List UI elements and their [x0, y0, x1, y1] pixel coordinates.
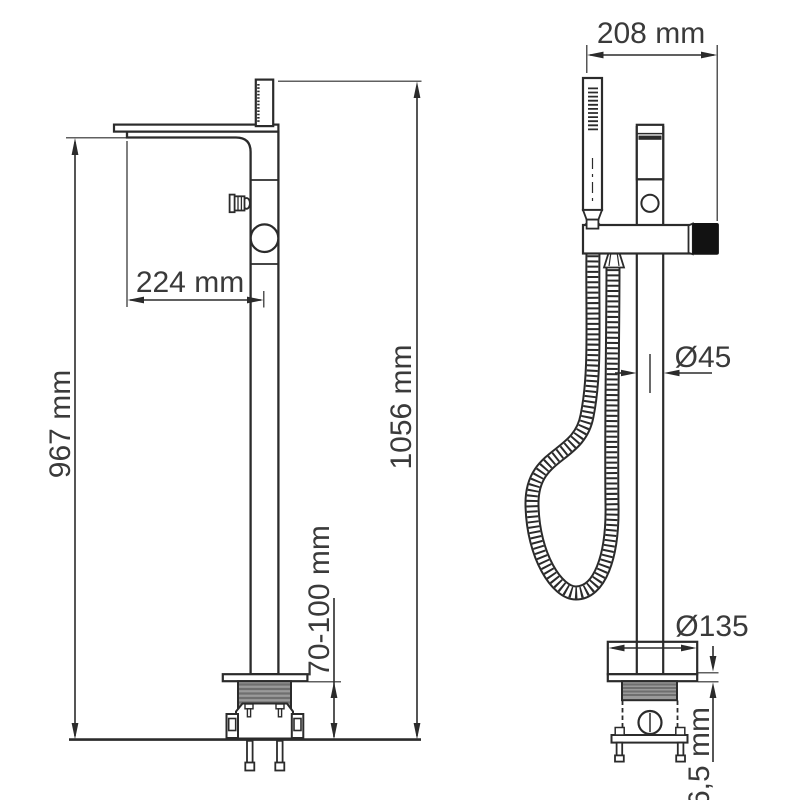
diverter-knob-cap — [230, 195, 235, 213]
shower-hose — [532, 250, 613, 593]
spout-top-plate — [114, 125, 278, 132]
side-view: 208 mm Ø45 Ø135 6,5 mm — [532, 17, 749, 800]
lever-handle — [256, 80, 273, 127]
diverter-knob-body — [235, 196, 245, 210]
rough-in-assembly — [612, 701, 688, 762]
faucet-dimension-drawing: 967 mm 1056 mm 224 mm 70-100 mm — [0, 0, 800, 800]
anchor-studs — [245, 741, 284, 771]
dimension-967: 967 mm — [44, 138, 131, 740]
clip-left-hole — [229, 719, 236, 731]
dimension-45: Ø45 — [615, 341, 731, 393]
dim-label-224: 224 mm — [136, 266, 244, 299]
wand-taper — [583, 210, 602, 220]
dimension-208: 208 mm — [587, 17, 717, 221]
bracket-bolt — [615, 728, 624, 736]
bolt-head — [245, 704, 253, 709]
hand-shower-wand — [583, 78, 602, 229]
stud-tip — [275, 763, 284, 771]
handle-cone-joint — [689, 224, 693, 255]
technical-drawing-page: 967 mm 1056 mm 224 mm 70-100 mm — [0, 0, 800, 800]
dimension-1056: 1056 mm — [278, 81, 422, 739]
dim-label-967: 967 mm — [44, 370, 77, 478]
diverter-knob — [230, 195, 250, 213]
diverter-button-front — [641, 195, 658, 212]
faucet-body-outline — [127, 132, 278, 675]
dim-label-45: Ø45 — [675, 341, 732, 374]
stud-stem — [277, 741, 283, 763]
dim-label-135: Ø135 — [675, 610, 748, 643]
wand-tip — [587, 220, 599, 229]
bolt-stem — [278, 709, 281, 717]
stud-tip — [245, 763, 254, 771]
spout-slot-shadow — [639, 136, 662, 140]
stud-stem — [617, 743, 623, 756]
bracket-bar — [612, 735, 688, 743]
dim-label-6-5: 6,5 mm — [683, 707, 716, 800]
threaded-tail-side — [622, 681, 677, 700]
stud-stem — [247, 741, 253, 763]
hose-outline — [532, 250, 613, 593]
temperature-handle-black — [693, 224, 719, 255]
base-flange-plate — [608, 674, 697, 681]
floor-flange-plate — [223, 674, 308, 681]
dimension-70-100: 70-100 mm — [303, 525, 341, 739]
dimension-224: 224 mm — [127, 141, 264, 308]
front-view: 967 mm 1056 mm 224 mm 70-100 mm — [44, 80, 422, 771]
bolt-stem — [247, 709, 250, 717]
temperature-dial — [251, 224, 279, 252]
clip-right-hole — [294, 719, 301, 731]
dim-label-70-100: 70-100 mm — [303, 525, 336, 677]
cross-body — [583, 195, 718, 255]
bolt-head — [276, 704, 284, 709]
dim-label-1056: 1056 mm — [385, 344, 418, 469]
dim-label-208: 208 mm — [597, 17, 705, 50]
stud-tip — [615, 755, 624, 761]
